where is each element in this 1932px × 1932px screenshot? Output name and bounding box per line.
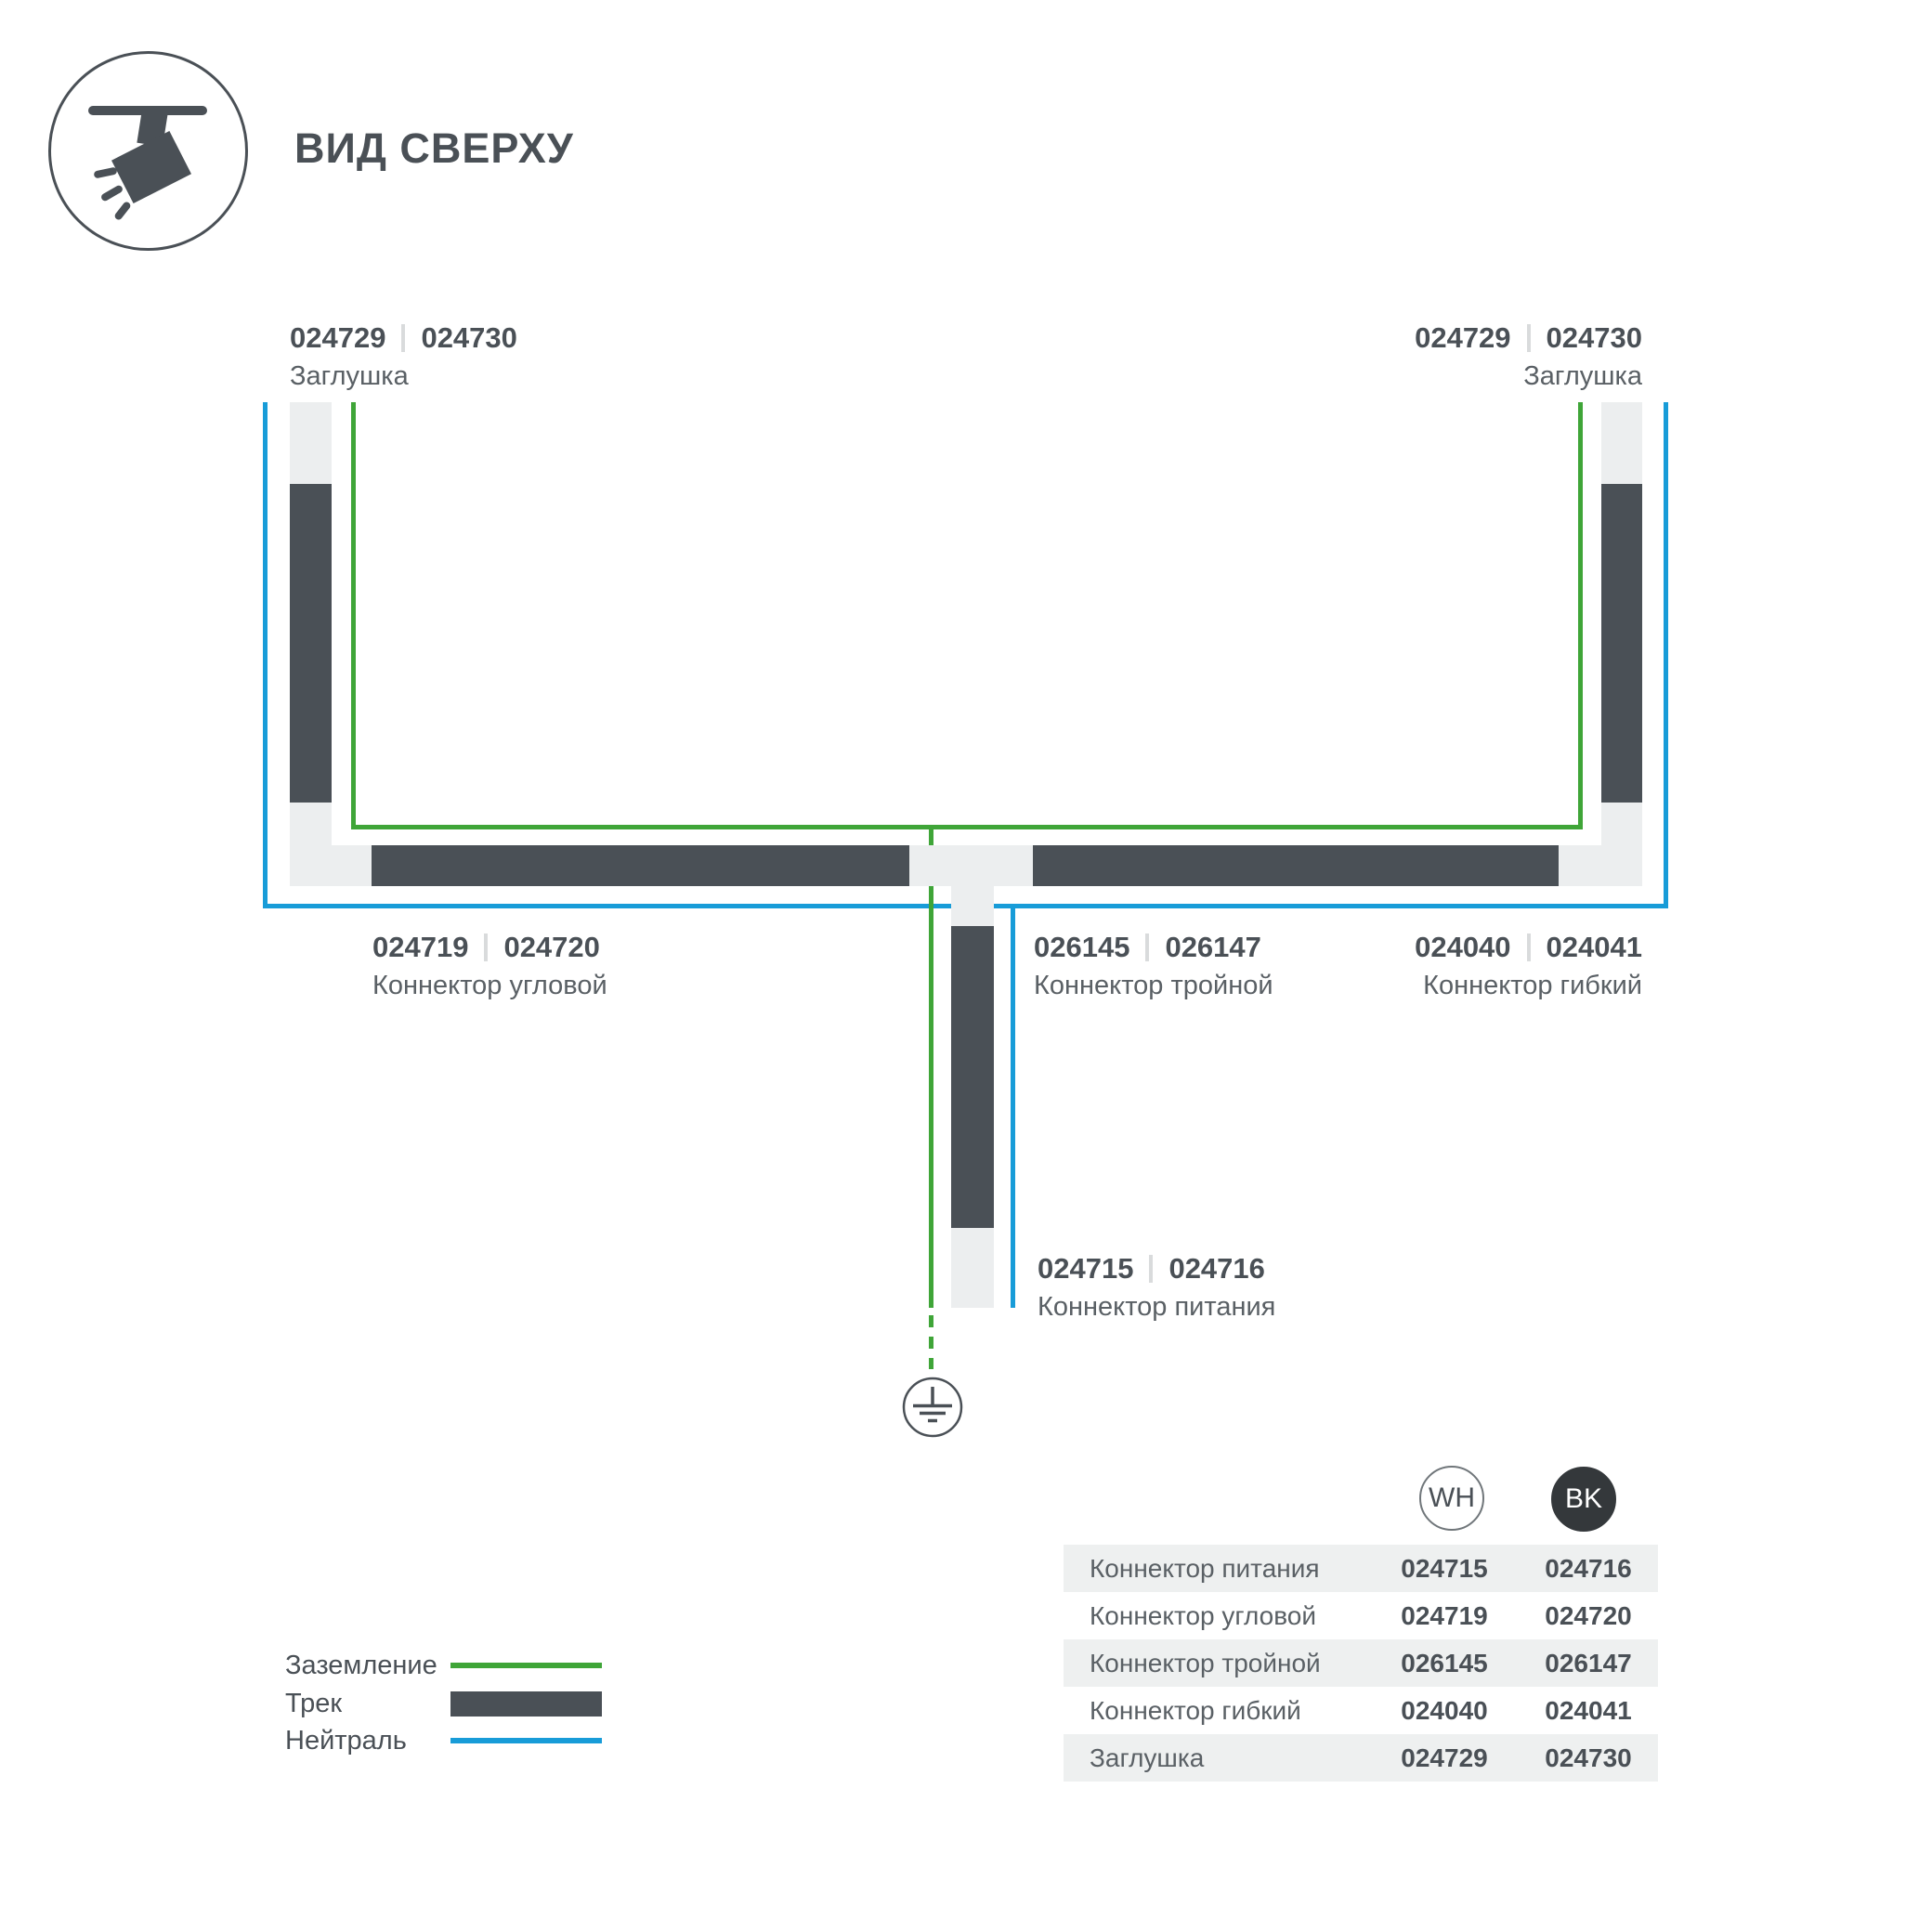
row-name: Коннектор тройной (1064, 1649, 1370, 1678)
triple-connector-bar (909, 845, 1033, 886)
row-name: Коннектор питания (1064, 1554, 1370, 1584)
row-code-wh: 024729 (1370, 1743, 1519, 1773)
track-right-vertical (1601, 484, 1642, 803)
table-row: Коннектор питания 024715 024716 (1064, 1545, 1658, 1592)
ground-wire-right-vertical (1578, 402, 1583, 829)
triple-connector-stem (951, 886, 994, 926)
part-name: Коннектор питания (1038, 1292, 1275, 1323)
track-horizontal-left (372, 845, 909, 886)
track-left-vertical (290, 484, 332, 803)
code-divider (1149, 1255, 1153, 1283)
row-code-bk: 024720 (1519, 1601, 1658, 1631)
legend-neutral-line-swatch (450, 1738, 602, 1743)
corner-connector-horizontal-leg (332, 845, 372, 886)
part-name: Коннектор гибкий (1415, 971, 1642, 1001)
page-title: ВИД СВЕРХУ (294, 124, 574, 173)
light-ray-icon (93, 166, 117, 178)
row-code-wh: 026145 (1370, 1649, 1519, 1678)
light-ray-icon (100, 184, 124, 202)
light-ray-icon (113, 201, 132, 221)
flexible-connector-vertical-leg (1601, 803, 1642, 886)
part-code-wh: 024719 (372, 931, 468, 964)
label-flexible-connector: 024040 024041 Коннектор гибкий (1415, 931, 1642, 1001)
row-code-bk: 024730 (1519, 1743, 1658, 1773)
color-badge-wh: WH (1419, 1466, 1484, 1531)
flexible-connector-horizontal-leg (1559, 845, 1601, 886)
neutral-wire-drop (1011, 904, 1015, 1308)
row-code-wh: 024719 (1370, 1601, 1519, 1631)
code-divider (1145, 933, 1149, 961)
ground-wire-dashed (929, 1315, 933, 1369)
legend-label-neutral: Нейтраль (285, 1726, 407, 1756)
legend-label-track: Трек (285, 1689, 342, 1719)
row-code-bk: 024041 (1519, 1696, 1658, 1726)
earth-ground-icon (902, 1377, 963, 1438)
end-cap-right (1601, 402, 1642, 484)
label-power-connector: 024715 024716 Коннектор питания (1038, 1252, 1275, 1323)
row-code-wh: 024040 (1370, 1696, 1519, 1726)
code-divider (401, 324, 405, 352)
power-connector (951, 1228, 994, 1308)
label-triple-connector: 026145 026147 Коннектор тройной (1034, 931, 1273, 1001)
row-name: Коннектор угловой (1064, 1601, 1370, 1631)
part-code-bk: 024041 (1547, 931, 1642, 964)
end-cap-left (290, 402, 332, 484)
track-light-icon (48, 51, 248, 251)
track-horizontal-right (1033, 845, 1559, 886)
part-name: Коннектор угловой (372, 971, 607, 1001)
row-name: Коннектор гибкий (1064, 1696, 1370, 1726)
code-divider (1527, 324, 1531, 352)
neutral-wire-right-vertical (1664, 402, 1668, 908)
table-row: Заглушка 024729 024730 (1064, 1734, 1658, 1782)
part-code-wh: 024715 (1038, 1252, 1133, 1286)
corner-connector-vertical-leg (290, 803, 332, 886)
legend-label-ground: Заземление (285, 1651, 437, 1681)
row-code-wh: 024715 (1370, 1554, 1519, 1584)
label-corner-connector: 024719 024720 Коннектор угловой (372, 931, 607, 1001)
part-code-wh: 024040 (1415, 931, 1510, 964)
table-row: Коннектор угловой 024719 024720 (1064, 1592, 1658, 1639)
part-code-bk: 024716 (1168, 1252, 1264, 1286)
ground-wire-left-vertical (351, 402, 356, 829)
neutral-wire-left-vertical (263, 402, 268, 908)
legend-ground-line-swatch (450, 1663, 602, 1668)
track-stem-vertical (951, 926, 994, 1228)
part-name: Заглушка (290, 361, 517, 392)
legend-track-bar-swatch (450, 1691, 602, 1717)
color-badge-bk: BK (1551, 1467, 1616, 1532)
part-code-wh: 026145 (1034, 931, 1129, 964)
row-code-bk: 024716 (1519, 1554, 1658, 1584)
part-name: Коннектор тройной (1034, 971, 1273, 1001)
ground-wire-drop (929, 825, 933, 1308)
part-number-table: Коннектор питания 024715 024716 Коннекто… (1064, 1545, 1658, 1782)
neutral-wire-left-horizontal (263, 904, 951, 908)
part-code-bk: 024730 (421, 321, 516, 355)
part-name: Заглушка (1415, 361, 1642, 392)
code-divider (484, 933, 488, 961)
part-code-wh: 024729 (1415, 321, 1510, 355)
part-code-bk: 024730 (1547, 321, 1642, 355)
code-divider (1527, 933, 1531, 961)
row-name: Заглушка (1064, 1743, 1370, 1773)
neutral-wire-right-horizontal (994, 904, 1668, 908)
part-code-bk: 024720 (503, 931, 599, 964)
part-code-bk: 026147 (1165, 931, 1260, 964)
ground-wire-horizontal (351, 825, 1583, 829)
spotlight-head-icon (111, 131, 191, 203)
table-row: Коннектор гибкий 024040 024041 (1064, 1687, 1658, 1734)
table-row: Коннектор тройной 026145 026147 (1064, 1639, 1658, 1687)
label-end-cap-left: 024729 024730 Заглушка (290, 321, 517, 392)
row-code-bk: 026147 (1519, 1649, 1658, 1678)
label-end-cap-right: 024729 024730 Заглушка (1415, 321, 1642, 392)
part-code-wh: 024729 (290, 321, 385, 355)
